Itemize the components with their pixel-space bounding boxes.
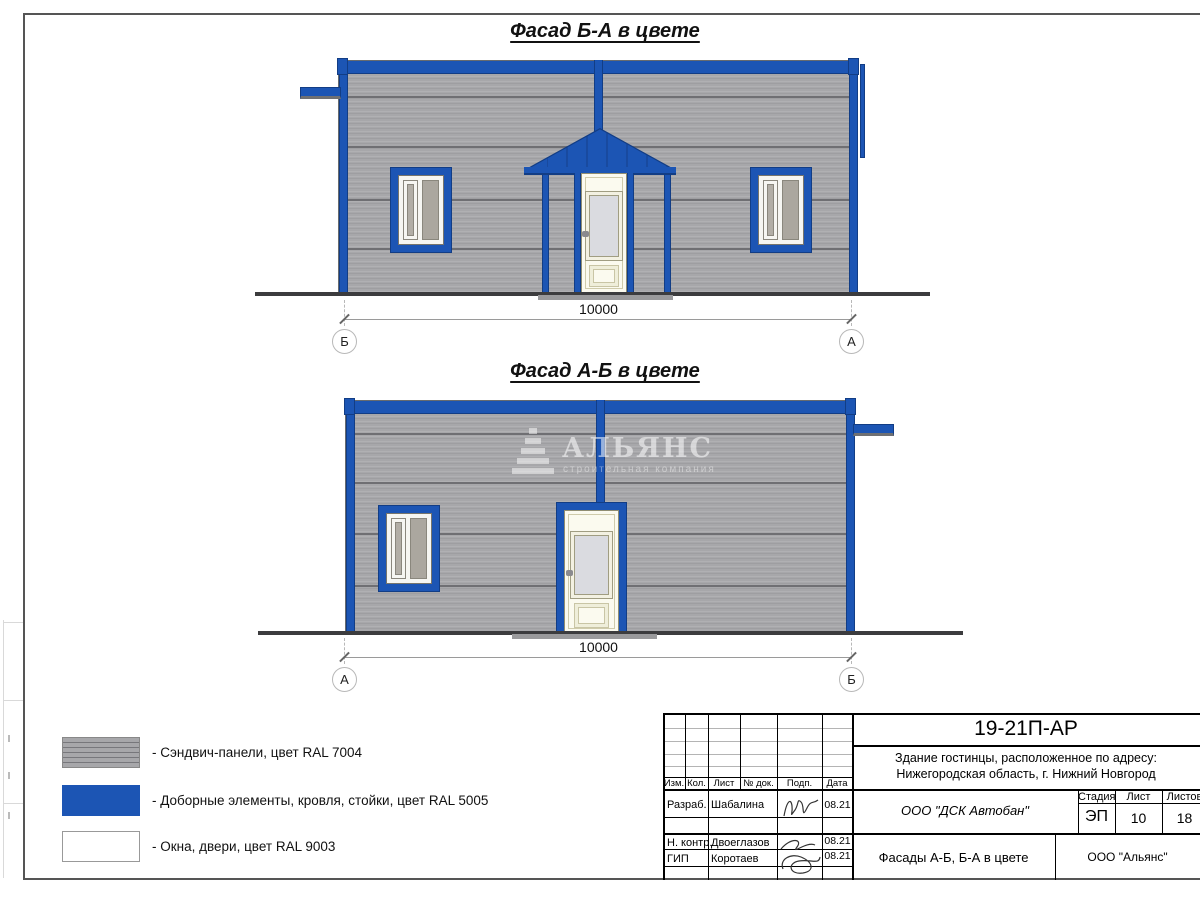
legend-label-windows-doors: - Окна, двери, цвет RAL 9003 [152, 839, 335, 854]
corner-cap-left [337, 58, 348, 75]
signer-date: 08.21 [823, 799, 852, 811]
margin-stamp-line [3, 700, 23, 701]
window-left [378, 505, 440, 592]
window-casement [763, 180, 778, 240]
corner-trim-right [849, 61, 858, 295]
legend-swatch-windows-doors [62, 831, 140, 862]
window-casement [391, 518, 406, 579]
porch-post-left [542, 175, 549, 293]
window-fixed-pane [782, 180, 799, 240]
axis-marker-a: А [332, 667, 357, 692]
titleblock-line [663, 728, 852, 729]
dimension-value: 10000 [345, 639, 852, 655]
downpipe-bracket-right [860, 64, 865, 158]
col-header-data: Дата [822, 778, 852, 789]
window-frame [399, 176, 443, 244]
stage-value: ЭП [1078, 808, 1115, 826]
contractor-org: ООО "ДСК Автобан" [852, 803, 1078, 818]
dimension-line [345, 657, 852, 658]
door-handle [582, 231, 589, 237]
watermark-company-subtitle: строительная компания [563, 464, 716, 475]
corner-cap-right [848, 58, 859, 75]
window-frame [759, 176, 803, 244]
window-casement [403, 180, 418, 240]
titleblock-line [708, 713, 709, 880]
frame-bottom [23, 878, 1200, 880]
margin-stamp-line [3, 620, 4, 878]
col-header-list: Лист [708, 778, 740, 789]
project-address-line2: Нижегородская область, г. Нижний Новгоро… [852, 767, 1200, 781]
door-handle [566, 570, 573, 576]
entrance-step [538, 295, 673, 300]
door-glass-pane [575, 536, 608, 594]
drain-spout-left [300, 87, 341, 99]
door-glass-pane [590, 196, 618, 256]
drawing-sheet: Фасад Б-А в цвете [0, 0, 1200, 900]
margin-stamp-line [3, 622, 23, 623]
drain-spout-right [853, 424, 894, 436]
titleblock-line [663, 713, 665, 880]
window-left [390, 167, 452, 253]
col-header-podp: Подп. [777, 778, 822, 789]
door-trim-left [574, 173, 581, 293]
dimension-value: 10000 [345, 301, 852, 317]
signer-role: Н. контр. [667, 837, 712, 849]
frame-left [23, 13, 25, 880]
watermark-company-name: АЛЬЯНС [562, 433, 713, 464]
margin-stamp-tick [8, 772, 10, 779]
drawing-title: Фасады А-Б, Б-А в цвете [852, 850, 1055, 865]
col-header-ndok: № док. [740, 778, 777, 789]
door-trim-right [627, 173, 634, 293]
margin-stamp-tick [8, 812, 10, 819]
frame-top [23, 13, 1200, 15]
entrance-door [581, 173, 627, 293]
design-org: ООО "Альянс" [1055, 850, 1200, 864]
legend-swatch-trim-elements [62, 785, 140, 816]
axis-marker-a: А [839, 329, 864, 354]
titleblock-line [663, 866, 852, 867]
signer-name: Шабалина [711, 799, 764, 811]
corner-trim-left [346, 401, 355, 633]
signer-date: 08.21 [823, 850, 852, 862]
window-fixed-pane [422, 180, 439, 240]
titleblock-line [663, 754, 852, 755]
door-lower-panel [575, 604, 608, 627]
sheets-total: 18 [1162, 810, 1200, 826]
dimension-line [345, 319, 852, 320]
stage-label: Стадия [1078, 791, 1115, 803]
axis-marker-b: Б [332, 329, 357, 354]
center-downpipe [594, 60, 603, 132]
legend-label-sandwich-panels: - Сэндвич-панели, цвет RAL 7004 [152, 745, 362, 760]
window-frame [387, 514, 431, 583]
titleblock-line [663, 833, 1200, 835]
axis-marker-b: Б [839, 667, 864, 692]
sheet-label: Лист [1115, 791, 1162, 803]
titleblock-line [663, 741, 852, 742]
col-header-izm: Изм. [663, 778, 685, 789]
signer-name: Двоеглазов [711, 837, 769, 849]
titleblock-line [663, 713, 1200, 715]
doc-number: 19-21П-АР [852, 717, 1200, 741]
project-address-line1: Здание гостинцы, расположенное по адресу… [852, 751, 1200, 765]
signer-role: ГИП [667, 853, 689, 865]
window-fixed-pane [410, 518, 427, 579]
legend-label-trim-elements: - Доборные элементы, кровля, стойки, цве… [152, 793, 488, 808]
col-header-kol: Кол. [685, 778, 708, 789]
corner-cap-left [344, 398, 355, 415]
signer-role: Разраб. [667, 799, 707, 811]
titleblock-line [663, 817, 852, 818]
titleblock-line [852, 745, 1200, 747]
signature-shabalina [781, 794, 821, 822]
corner-cap-right [845, 398, 856, 415]
door-lower-panel [590, 266, 618, 286]
window-right [750, 167, 812, 253]
porch-post-right [664, 175, 671, 293]
titleblock-line [1078, 803, 1200, 804]
facade-ba-title: Фасад Б-А в цвете [340, 20, 870, 43]
margin-stamp-tick [8, 735, 10, 742]
titleblock-line [663, 766, 852, 767]
sheet-number: 10 [1115, 810, 1162, 826]
sheets-label: Листов [1162, 791, 1200, 803]
signer-date: 08.21 [823, 835, 852, 847]
signature-dvoeglazov-korotaev [777, 835, 823, 877]
legend-swatch-sandwich-panels [62, 737, 140, 768]
alliance-logo-pyramid [508, 420, 558, 478]
signer-name: Коротаев [711, 853, 759, 865]
entrance-door [564, 510, 619, 633]
margin-stamp-line [3, 803, 23, 804]
facade-ab-title: Фасад А-Б в цвете [340, 360, 870, 383]
